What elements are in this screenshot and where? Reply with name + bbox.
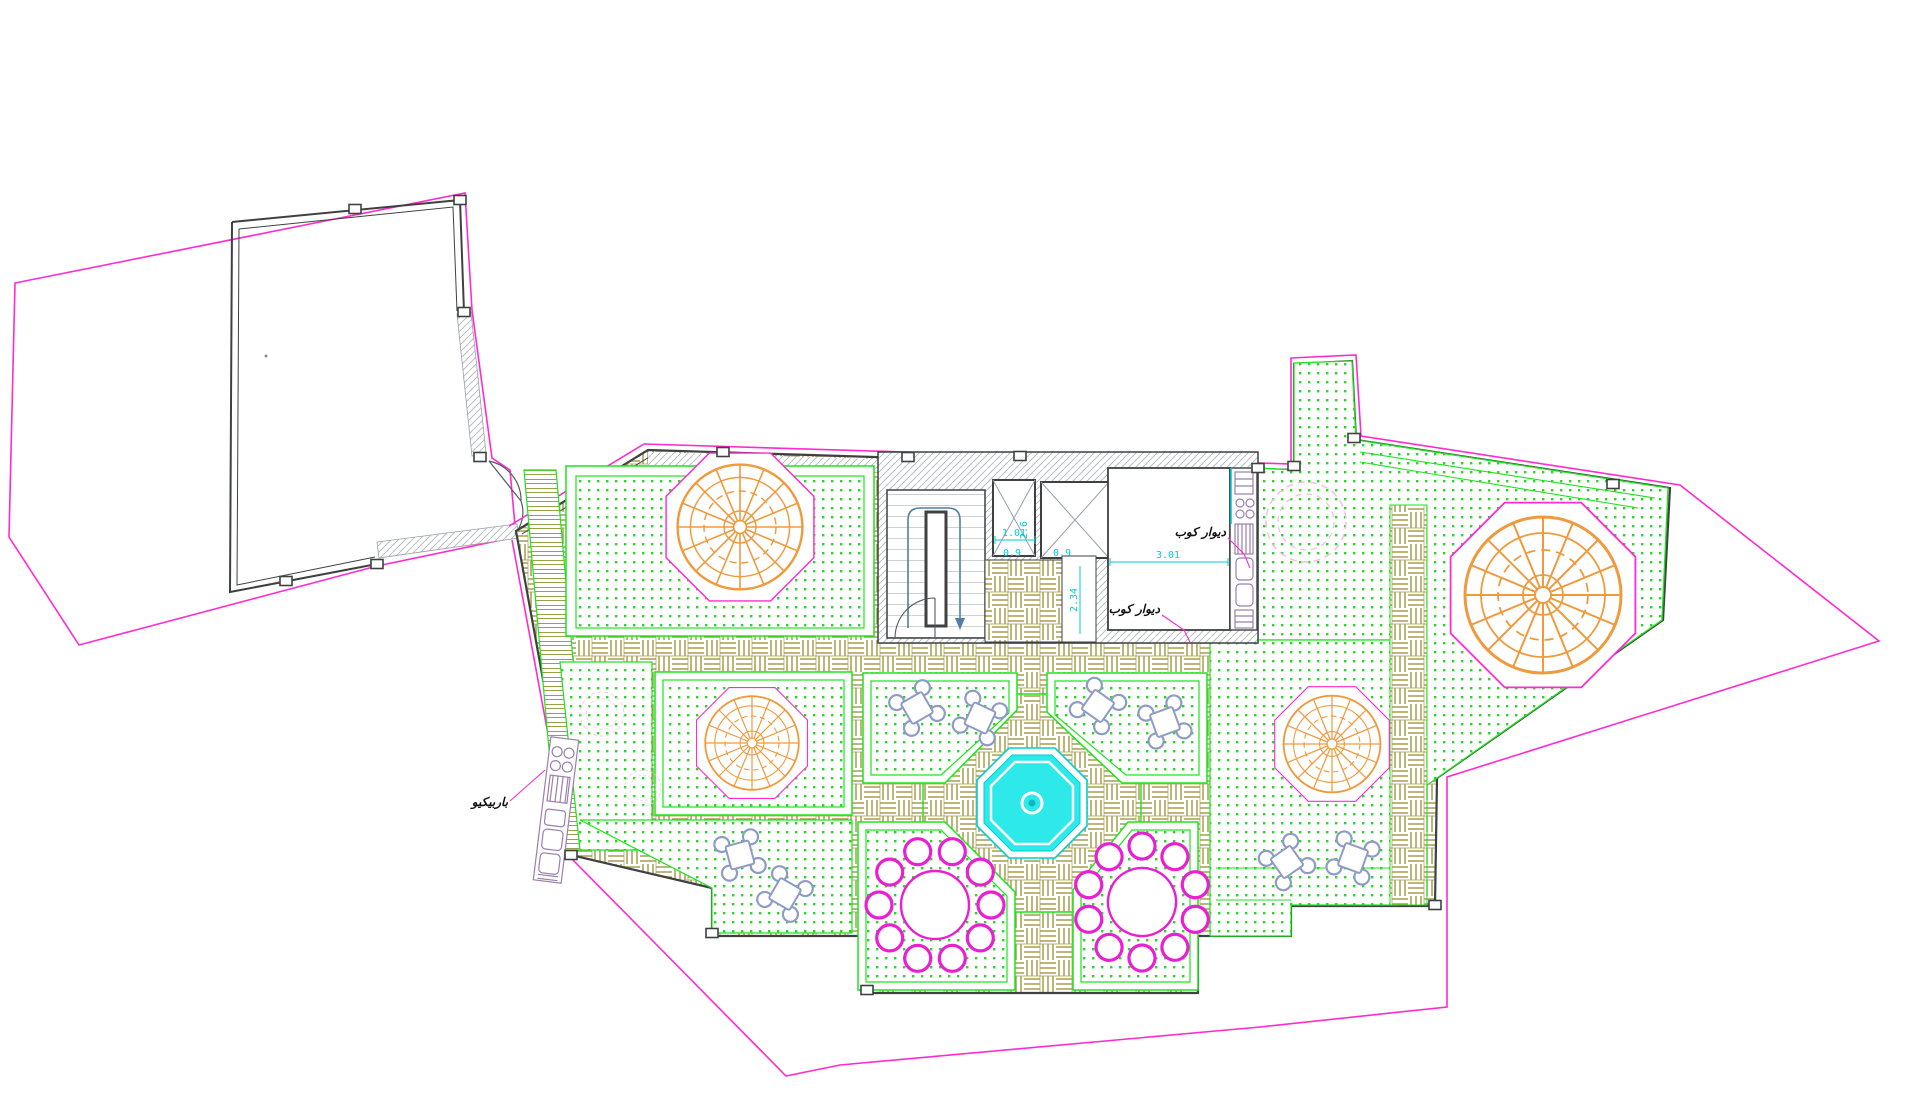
site-plan-drawing: 2.6 1.01 0.9 0.9 2.34 3.01 دیوار کوب دیو… [0, 0, 1920, 1120]
dim-door-right: 0.9 [1053, 548, 1071, 559]
svg-text:دیوار کوب: دیوار کوب [1109, 602, 1161, 617]
svg-text:دیوار کوب: دیوار کوب [1175, 525, 1227, 540]
stair-newel [926, 512, 946, 626]
barbecue-label: باربیکیو [470, 770, 545, 810]
pergola-top-left [666, 453, 814, 601]
dim-corridor: 2.34 [1069, 588, 1080, 612]
left-parcel [9, 193, 523, 645]
wall-hatch-band-bottom [377, 524, 519, 558]
dim-door-left: 0.9 [1003, 548, 1021, 559]
pergola-mid-left [697, 688, 808, 799]
stair-room [887, 490, 985, 638]
dim-kitchen-width: 3.01 [1156, 550, 1180, 561]
pergola-mid-right [1275, 687, 1390, 802]
drawing-sheet: 2.6 1.01 0.9 0.9 2.34 3.01 دیوار کوب دیو… [0, 0, 1920, 1120]
svg-text:باربیکیو: باربیکیو [470, 795, 509, 810]
parquet-path-right [1390, 505, 1427, 905]
core-parquet-lobby [985, 560, 1062, 642]
central-pool [977, 748, 1087, 858]
pergola-right-large [1451, 503, 1636, 688]
entrance-door [489, 461, 523, 534]
left-parcel-property-line [9, 193, 516, 645]
elevator-shaft-left [993, 480, 1035, 556]
elevator-shaft-right [1041, 482, 1109, 558]
left-building [230, 200, 464, 592]
survey-dot [265, 355, 268, 358]
dim-elevator-width: 1.01 [1002, 528, 1026, 539]
